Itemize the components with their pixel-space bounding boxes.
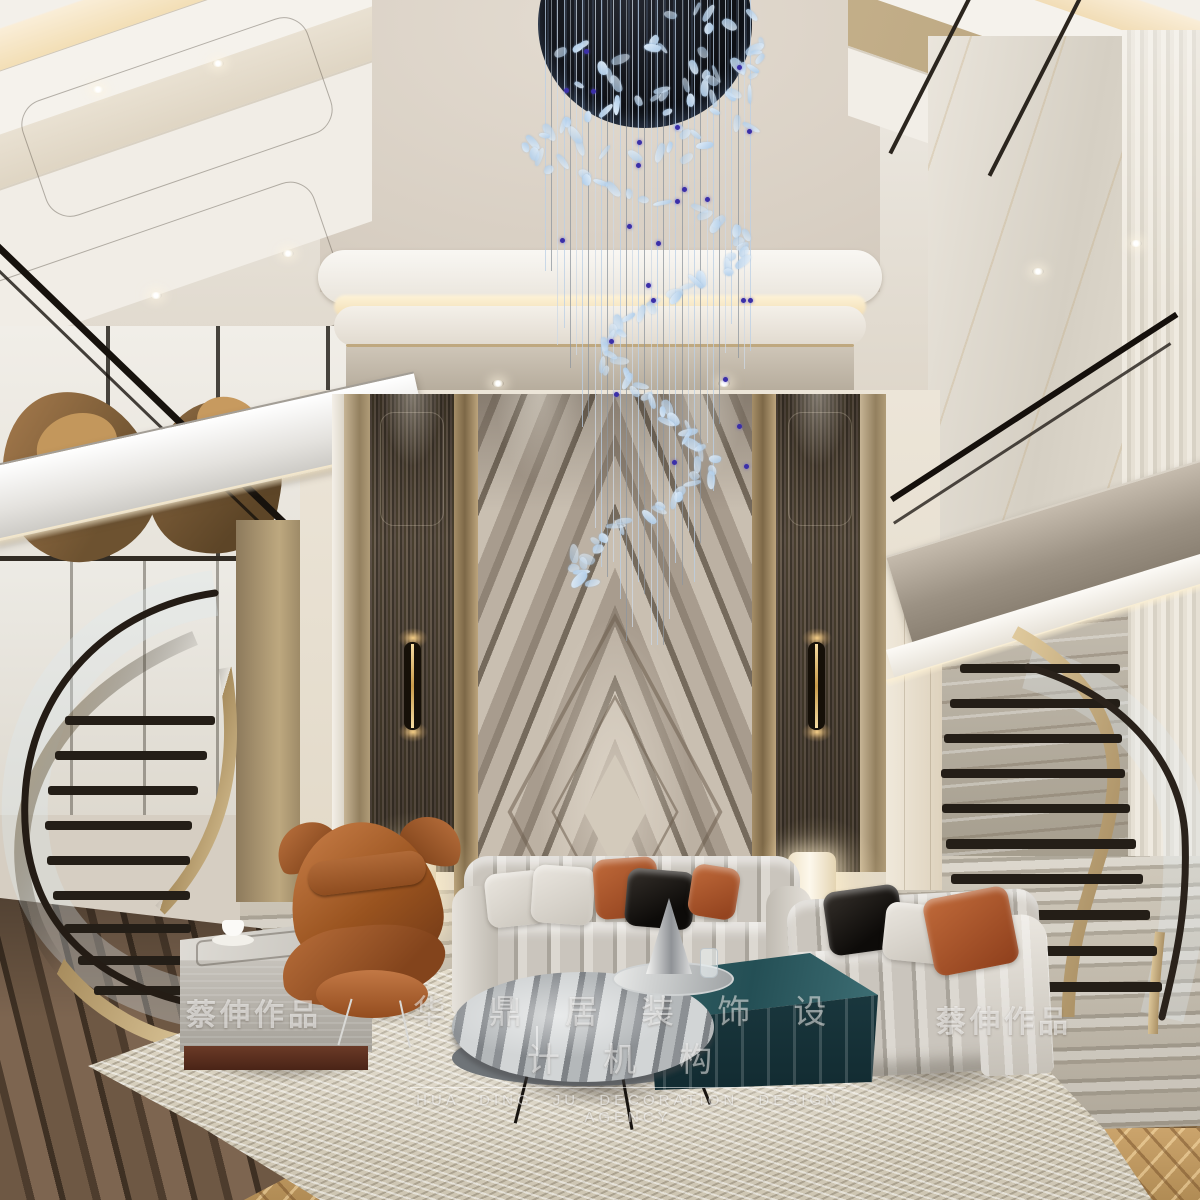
watermark-agency-chinese: 华 鼎 居 装 饰 设 计 机 构 bbox=[408, 985, 848, 1081]
watermark-agency: 华 鼎 居 装 饰 设 计 机 构 HUA DING JU DECORATION… bbox=[408, 985, 848, 1126]
pillow-orange bbox=[921, 885, 1020, 978]
downlight bbox=[92, 86, 104, 93]
champagne-pilaster bbox=[344, 394, 370, 872]
downlight bbox=[1130, 240, 1142, 247]
downlight bbox=[212, 60, 224, 67]
watermark-artist-left: 蔡伸作品 bbox=[186, 990, 322, 1034]
watermark-rule bbox=[410, 1087, 846, 1088]
sconce-gold-edge bbox=[411, 644, 414, 728]
living-room-render: 蔡伸作品 蔡伸作品 华 鼎 居 装 饰 设 计 机 构 HUA DING JU … bbox=[0, 0, 1200, 1200]
watermark-artist-right: 蔡伸作品 bbox=[936, 997, 1072, 1041]
downlight bbox=[150, 292, 162, 299]
wall-wash-light bbox=[372, 394, 452, 554]
watermark-divider-tick bbox=[536, 1026, 538, 1056]
wall-wash-light bbox=[640, 394, 760, 594]
pillow-black bbox=[624, 867, 697, 931]
glass-decanter bbox=[700, 948, 718, 978]
wall-wash-light bbox=[778, 394, 858, 554]
ceiling-center-tray bbox=[320, 0, 880, 292]
pillow-white bbox=[530, 864, 596, 926]
downlight bbox=[492, 380, 504, 387]
pillow-orange bbox=[686, 863, 742, 922]
downlight bbox=[282, 250, 294, 257]
side-table-base bbox=[184, 1046, 368, 1070]
downlight bbox=[1032, 268, 1044, 275]
champagne-pilaster bbox=[860, 394, 886, 872]
downlight bbox=[718, 380, 730, 387]
sconce-gold-edge bbox=[815, 644, 818, 728]
watermark-agency-english: HUA DING JU DECORATION DESIGN AGENCY bbox=[408, 1092, 848, 1126]
crown-band bbox=[334, 306, 866, 346]
wall-wash-light bbox=[480, 394, 600, 594]
